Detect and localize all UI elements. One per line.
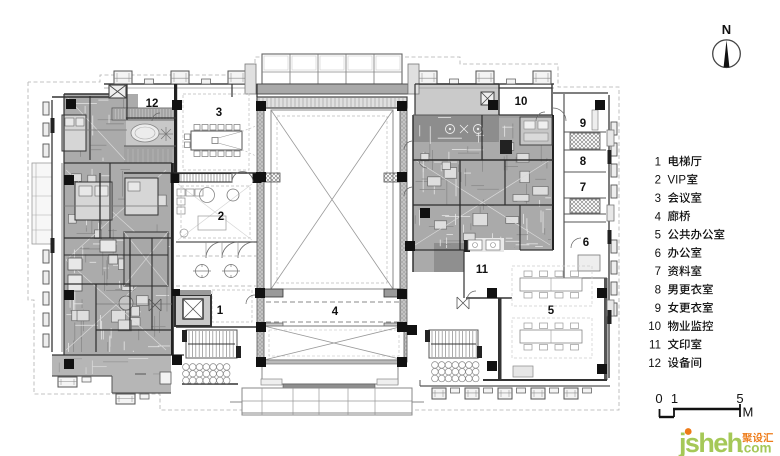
svg-text:7: 7 xyxy=(655,266,661,278)
svg-text:9: 9 xyxy=(655,303,661,315)
svg-text:11: 11 xyxy=(649,340,661,352)
svg-text:7: 7 xyxy=(580,182,586,194)
svg-text:10: 10 xyxy=(648,321,661,333)
svg-text:5: 5 xyxy=(655,230,661,242)
svg-text:VIP: VIP xyxy=(668,175,687,187)
svg-text:8: 8 xyxy=(580,156,587,168)
svg-text:2: 2 xyxy=(218,211,224,223)
svg-text:8: 8 xyxy=(655,285,661,297)
svg-text:6: 6 xyxy=(655,248,661,260)
svg-text:N: N xyxy=(722,22,731,37)
svg-text:1: 1 xyxy=(671,391,678,406)
svg-text:2: 2 xyxy=(655,175,661,187)
svg-text:12: 12 xyxy=(146,98,159,110)
svg-text:6: 6 xyxy=(583,237,589,249)
svg-text:3: 3 xyxy=(655,193,661,205)
svg-text:.com: .com xyxy=(740,441,772,456)
svg-text:9: 9 xyxy=(580,118,586,130)
svg-text:1: 1 xyxy=(655,156,661,168)
svg-text:4: 4 xyxy=(332,306,339,318)
svg-text:12: 12 xyxy=(648,358,661,370)
svg-text:1: 1 xyxy=(217,305,224,317)
svg-text:10: 10 xyxy=(515,96,528,108)
svg-text:0: 0 xyxy=(655,391,662,406)
svg-text:5: 5 xyxy=(548,305,555,317)
svg-text:3: 3 xyxy=(216,107,222,119)
svg-text:11: 11 xyxy=(476,264,489,276)
svg-text:4: 4 xyxy=(655,211,662,223)
svg-text:M: M xyxy=(743,405,754,420)
